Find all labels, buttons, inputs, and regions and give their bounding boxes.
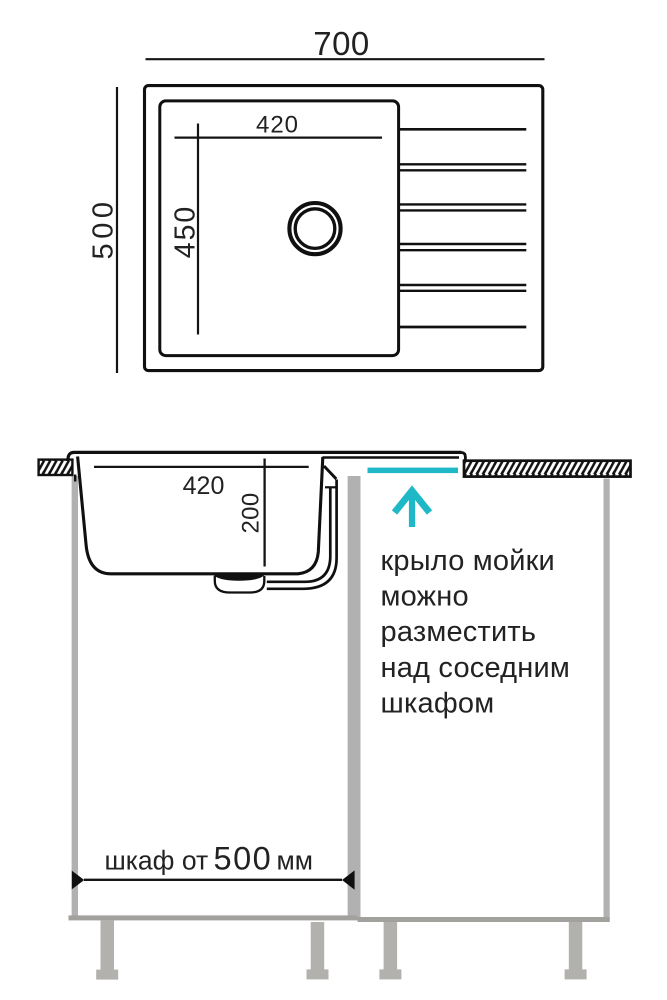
svg-text:шкафом: шкафом bbox=[381, 687, 495, 719]
svg-text:420: 420 bbox=[256, 112, 299, 139]
svg-text:700: 700 bbox=[313, 25, 370, 62]
svg-text:можно: можно bbox=[381, 581, 469, 613]
svg-text:500: 500 bbox=[88, 198, 120, 260]
svg-text:450: 450 bbox=[170, 205, 202, 259]
svg-text:крыло мойки: крыло мойки bbox=[381, 545, 555, 577]
svg-text:мм: мм bbox=[277, 845, 313, 875]
svg-text:разместить: разместить bbox=[381, 616, 537, 648]
svg-text:200: 200 bbox=[237, 493, 264, 534]
svg-text:500: 500 bbox=[214, 840, 273, 876]
svg-text:шкаф от: шкаф от bbox=[105, 845, 209, 875]
svg-text:над соседним: над соседним bbox=[381, 652, 571, 684]
svg-text:420: 420 bbox=[183, 472, 225, 500]
